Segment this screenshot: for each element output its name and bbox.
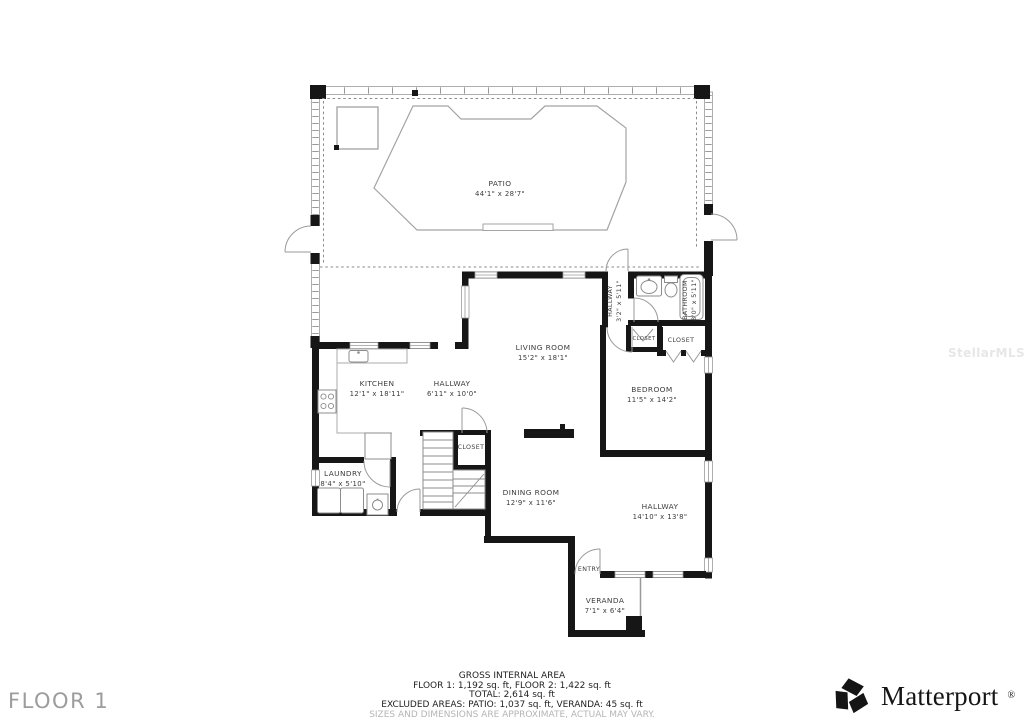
laundry-fixtures [318, 488, 389, 515]
laundry-dims: 8'4" x 5'10" [320, 480, 365, 488]
entry-label: ENTRY [578, 566, 600, 573]
floor-plan-drawing: PATIO 44'1" x 28'7" LIVING ROOM 15'2" x … [0, 0, 1024, 724]
closet-stairs-label: CLOSET [458, 444, 485, 451]
closet-small-label: CLOSET [633, 336, 656, 342]
matterport-logo: Matterport® [830, 676, 1015, 716]
veranda-dims: 7'1" x 6'4" [585, 607, 626, 615]
patio-dims: 44'1" x 28'7" [475, 190, 525, 198]
dining-room-label: DINING ROOM [503, 488, 560, 497]
area-summary: GROSS INTERNAL AREA FLOOR 1: 1,192 sq. f… [312, 672, 712, 721]
closet-large-label: CLOSET [668, 337, 695, 344]
mls-watermark: StellarMLS [948, 346, 1024, 360]
kitchen-fixtures [318, 349, 407, 459]
matterport-pinwheel-icon [830, 676, 872, 716]
patio-storage-room [334, 107, 378, 150]
floorplan-page: PATIO 44'1" x 28'7" LIVING ROOM 15'2" x … [0, 0, 1024, 724]
bedroom-label: BEDROOM [631, 385, 672, 394]
room-labels: PATIO 44'1" x 28'7" LIVING ROOM 15'2" x … [320, 179, 698, 615]
hallway-small-label: HALLWAY [607, 285, 614, 317]
floor-label: FLOOR 1 [8, 689, 109, 713]
kitchen-dims: 12'1" x 18'11" [350, 390, 405, 398]
laundry-label: LAUNDRY [324, 469, 362, 478]
bathroom-label: BATHROOM [682, 280, 689, 320]
veranda-label: VERANDA [586, 596, 625, 605]
hallway-main-dims: 6'11" x 10'0" [427, 390, 477, 398]
registered-mark: ® [1007, 691, 1015, 701]
hallway-small-dims: 3'2" x 5'11" [616, 280, 623, 322]
dining-room-dims: 12'9" x 11'6" [506, 499, 556, 507]
pool-outline [374, 106, 626, 231]
hallway-main-label: HALLWAY [434, 379, 471, 388]
living-room-dims: 15'2" x 18'1" [518, 354, 568, 362]
hallway-entry-dims: 14'10" x 13'8" [633, 513, 688, 521]
bathroom-dims: 8'0" x 5'11" [691, 279, 698, 321]
matterport-wordmark: Matterport [881, 681, 998, 712]
disclaimer-line: SIZES AND DIMENSIONS ARE APPROXIMATE, AC… [312, 711, 712, 721]
patio-label: PATIO [489, 179, 512, 188]
kitchen-label: KITCHEN [360, 379, 395, 388]
bedroom-dims: 11'5" x 14'2" [627, 396, 677, 404]
living-room-label: LIVING ROOM [516, 343, 571, 352]
hallway-entry-label: HALLWAY [642, 502, 679, 511]
